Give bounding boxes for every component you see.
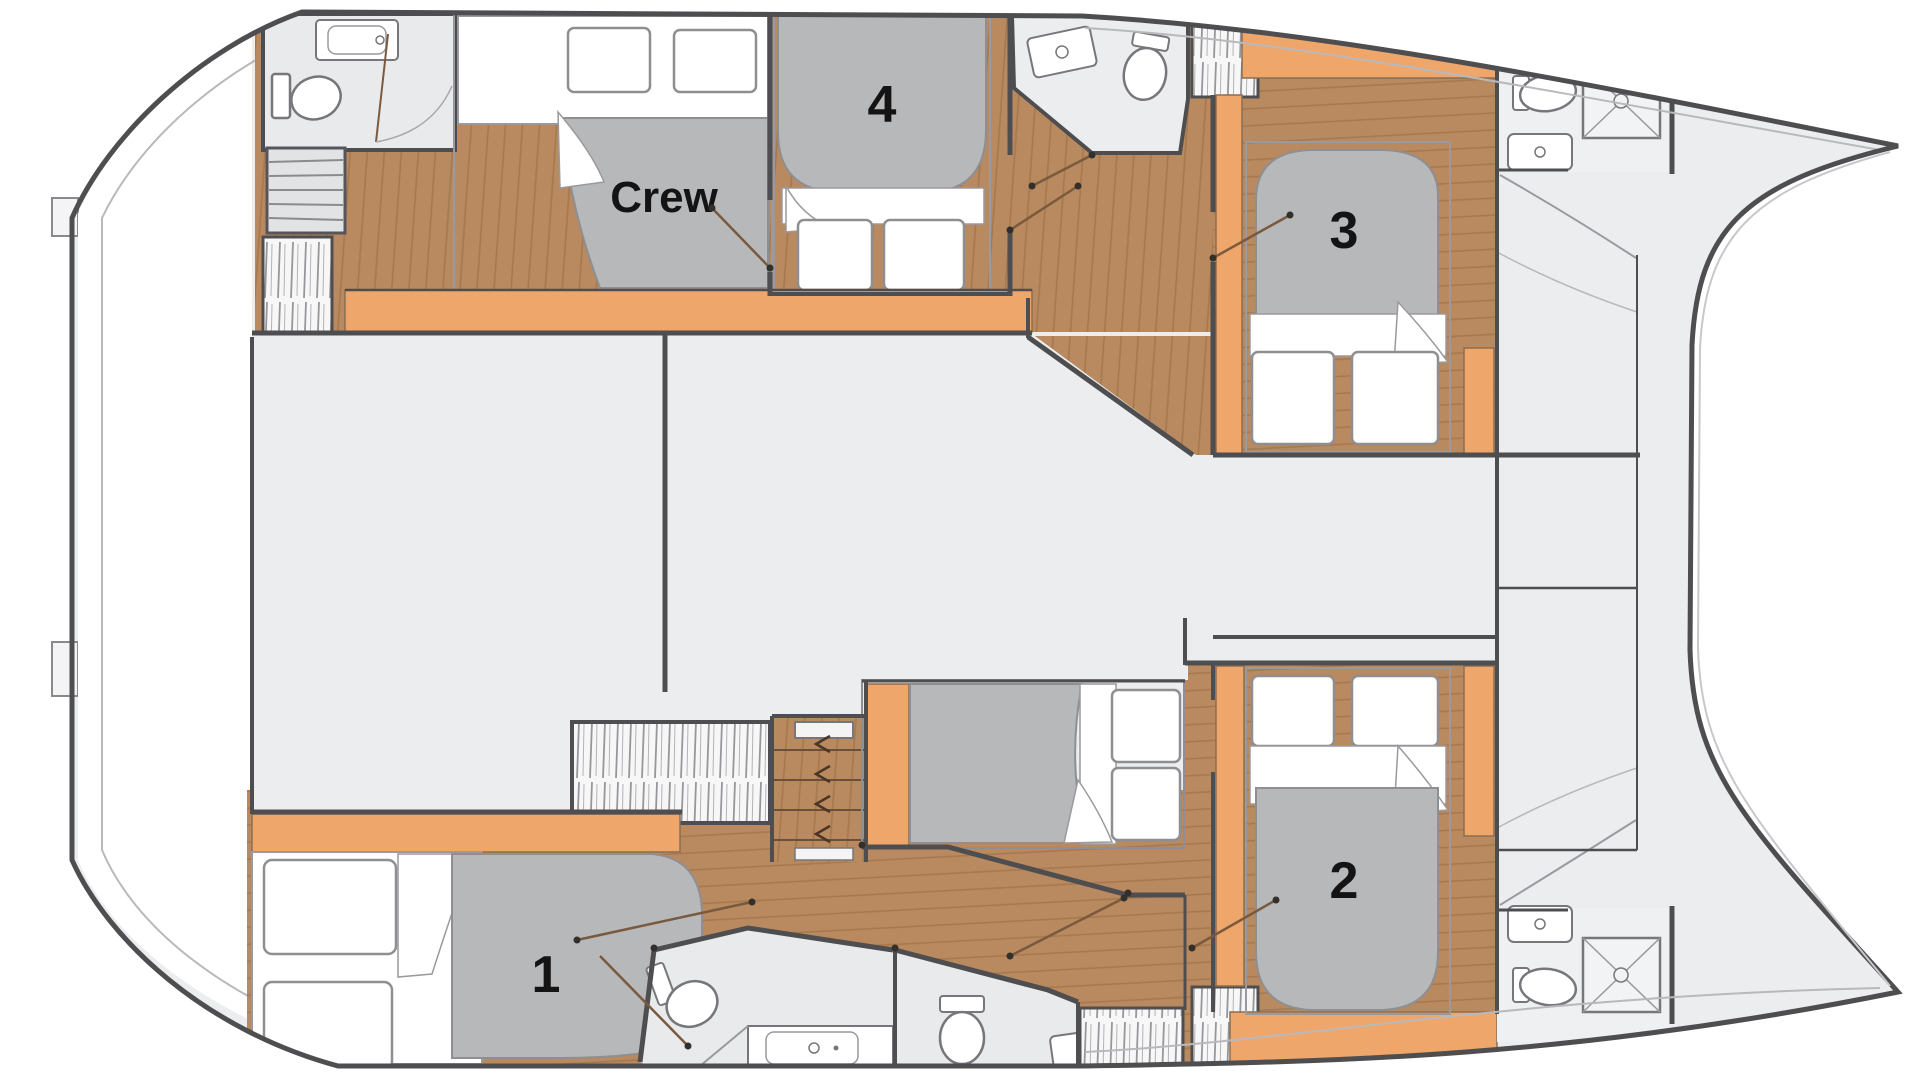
pillow-icon: [1352, 352, 1438, 444]
pillow-icon: [1112, 690, 1180, 762]
shelf-strip: [1216, 666, 1244, 986]
pillow-icon: [798, 220, 872, 290]
bed-blanket: [910, 684, 1088, 843]
cabin3-label: 3: [1330, 202, 1359, 260]
pillow-icon: [1352, 676, 1438, 746]
wardrobe-icon: [263, 237, 332, 333]
sink-icon: [748, 1026, 893, 1068]
pillow-icon: [1252, 676, 1334, 746]
cabin1-label: 1: [532, 946, 561, 1004]
cabin-1: 1: [252, 814, 702, 1070]
shelf-strip: [252, 814, 680, 852]
cabin2-label: 2: [1330, 852, 1359, 910]
shelf-strip: [345, 290, 1032, 332]
sink-icon: [1508, 134, 1572, 170]
starboard-bathroom-left: [640, 928, 895, 1068]
port-stairs: [267, 148, 345, 233]
pillow-icon: [674, 30, 756, 92]
catamaran-floorplan: Crew 4 3: [0, 0, 1920, 1080]
shelf-strip: [1464, 666, 1494, 836]
pillow-icon: [1112, 768, 1180, 840]
wardrobe-icon: [1080, 1008, 1183, 1068]
shower-icon: [1583, 64, 1660, 138]
pillow-icon: [264, 982, 392, 1070]
pillow-icon: [884, 220, 964, 290]
headboard: [865, 684, 909, 846]
wardrobe-icon: [572, 722, 770, 823]
shelf-strip: [1216, 95, 1242, 455]
pillow-icon: [264, 860, 396, 954]
cabin4-label: 4: [868, 76, 897, 134]
toilet-icon: [940, 996, 984, 1064]
shelf-strip: [1464, 348, 1494, 455]
pillow-icon: [1252, 352, 1334, 444]
port-bathroom-aft: [263, 14, 455, 150]
crew-label: Crew: [610, 173, 718, 222]
floorplan-image: Crew 4 3: [0, 0, 1920, 1080]
pillow-icon: [568, 28, 650, 92]
